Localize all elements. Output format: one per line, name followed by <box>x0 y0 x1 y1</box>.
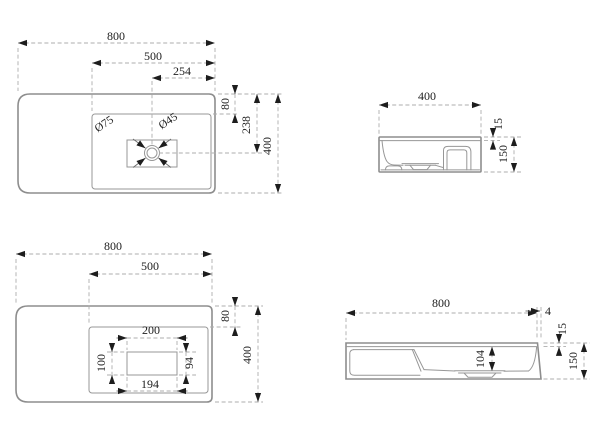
view-top-plan: 800 500 254 80 238 400 Ø75 Ø45 <box>18 29 283 193</box>
dim-top-basin-width: 500 <box>144 49 162 63</box>
bottom-cutout <box>127 352 177 375</box>
view-side-section: 400 15 150 <box>379 89 521 172</box>
label-drain-outer-diameter: Ø75 <box>93 114 116 135</box>
dimension-lines <box>346 311 584 379</box>
dim-top-drain-offset-y: 238 <box>239 116 253 134</box>
dim-top-depth: 400 <box>260 137 274 155</box>
dim-front-height: 150 <box>566 352 580 370</box>
dim-bottom-deck-depth: 80 <box>218 310 232 322</box>
dim-top-deck-depth: 80 <box>218 98 232 110</box>
basin-outline-bottom <box>16 306 212 402</box>
technical-drawing-sheet: 800 500 254 80 238 400 Ø75 Ø45 <box>0 0 600 433</box>
dim-front-edge-taper: 4 <box>545 304 551 318</box>
side-outline <box>379 137 481 172</box>
drain-inner-circle <box>147 148 157 158</box>
dim-front-width: 800 <box>432 296 450 310</box>
dim-cutout-height-left: 100 <box>94 354 108 372</box>
dim-bottom-width: 800 <box>104 239 122 253</box>
dim-top-drain-offset-x: 254 <box>173 64 191 78</box>
dim-cutout-width-bottom: 194 <box>141 377 159 391</box>
dim-bottom-depth: 400 <box>240 346 254 364</box>
dim-top-width: 800 <box>107 29 125 43</box>
dim-cutout-width-top: 200 <box>142 323 160 337</box>
dim-side-width: 400 <box>418 89 436 103</box>
dim-front-bowl-depth: 104 <box>473 350 487 368</box>
front-outline <box>346 343 541 379</box>
side-interior-profile <box>380 141 480 170</box>
dim-bottom-basin-width: 500 <box>141 259 159 273</box>
dim-front-rim: 15 <box>555 323 569 335</box>
dim-side-height: 150 <box>496 145 510 163</box>
view-bottom-plan: 800 500 80 400 200 194 100 94 <box>16 239 263 402</box>
dim-cutout-height-right: 94 <box>182 357 196 369</box>
basin-outline-top <box>18 94 215 193</box>
dimension-lines <box>16 254 258 402</box>
drawing-svg: 800 500 254 80 238 400 Ø75 Ø45 <box>0 0 600 433</box>
dim-side-rim: 15 <box>491 118 505 130</box>
extension-lines <box>16 259 263 402</box>
front-interior-profile <box>347 347 538 378</box>
view-front-section: 800 4 15 150 104 <box>346 296 590 379</box>
